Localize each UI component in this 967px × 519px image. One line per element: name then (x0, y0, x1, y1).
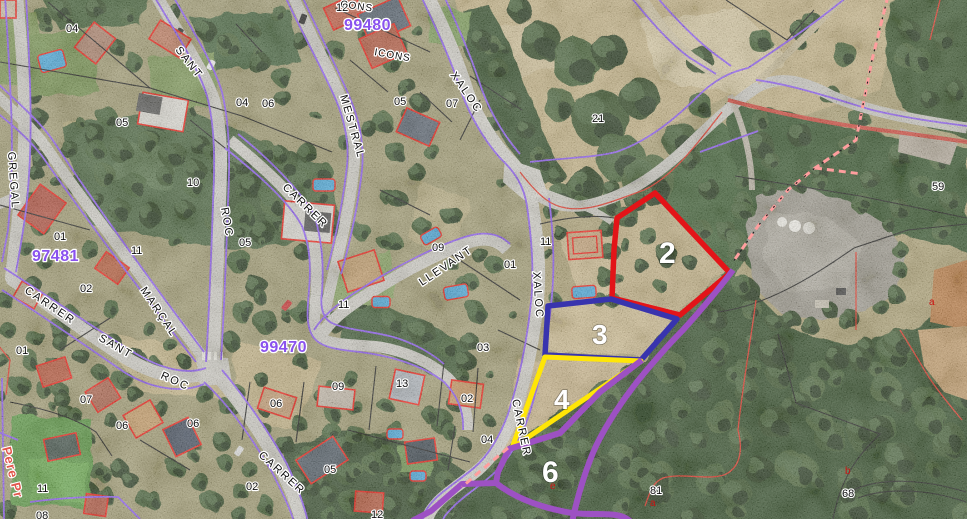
svg-text:01: 01 (504, 259, 516, 271)
svg-text:4: 4 (554, 384, 570, 415)
svg-text:99470: 99470 (260, 339, 307, 356)
svg-text:01: 01 (54, 231, 66, 243)
svg-text:05: 05 (394, 96, 406, 108)
svg-text:01: 01 (16, 345, 28, 357)
svg-text:3: 3 (592, 319, 608, 350)
svg-text:13: 13 (396, 378, 408, 390)
svg-text:11: 11 (338, 299, 349, 311)
svg-text:07: 07 (80, 394, 92, 406)
svg-text:99480: 99480 (344, 17, 391, 34)
svg-text:10: 10 (187, 177, 199, 189)
svg-text:02: 02 (80, 283, 92, 295)
svg-text:06: 06 (116, 420, 128, 432)
svg-text:81: 81 (650, 485, 662, 497)
svg-text:05: 05 (239, 237, 251, 249)
svg-text:03: 03 (477, 342, 489, 354)
svg-text:02: 02 (461, 393, 473, 405)
svg-text:21: 21 (592, 113, 604, 125)
svg-text:06: 06 (262, 98, 274, 110)
svg-text:06: 06 (270, 398, 282, 410)
svg-text:a: a (929, 297, 935, 308)
svg-text:07: 07 (446, 98, 458, 110)
svg-text:09: 09 (332, 381, 344, 393)
svg-text:08: 08 (36, 510, 48, 519)
svg-text:11: 11 (540, 236, 551, 248)
svg-text:04: 04 (481, 434, 493, 446)
svg-text:12: 12 (371, 509, 383, 519)
svg-text:09: 09 (432, 242, 444, 254)
svg-text:11: 11 (131, 245, 142, 257)
svg-text:59: 59 (932, 181, 944, 193)
svg-text:6: 6 (542, 456, 559, 489)
svg-text:12: 12 (336, 2, 348, 14)
svg-text:05: 05 (324, 464, 336, 476)
svg-text:68: 68 (842, 488, 854, 500)
svg-text:b: b (845, 466, 851, 477)
svg-text:04: 04 (236, 97, 248, 109)
svg-text:05: 05 (116, 117, 128, 129)
svg-text:06: 06 (187, 418, 199, 430)
svg-text:2: 2 (659, 237, 676, 270)
svg-text:a: a (650, 498, 656, 509)
svg-text:11: 11 (37, 483, 48, 495)
svg-text:02: 02 (246, 481, 258, 493)
svg-text:97481: 97481 (32, 248, 79, 265)
svg-text:04: 04 (66, 23, 78, 35)
